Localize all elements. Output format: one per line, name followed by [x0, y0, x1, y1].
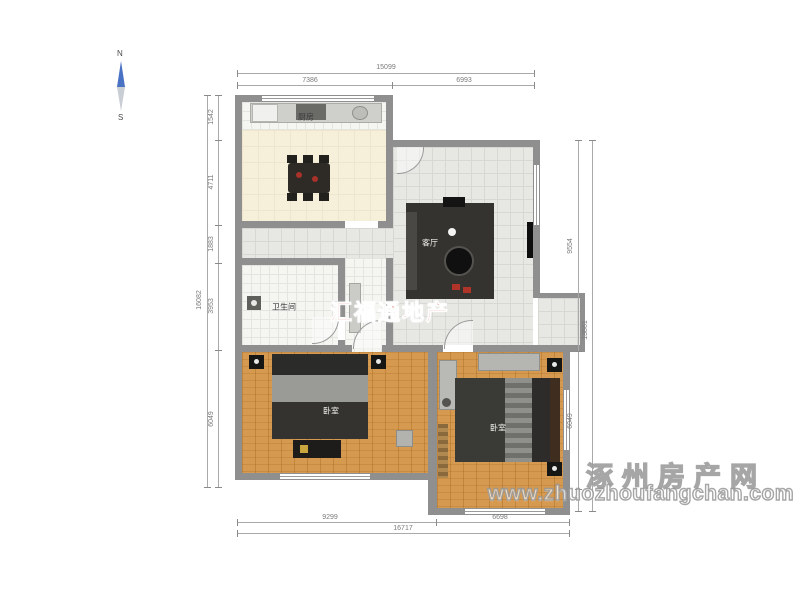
bathroom-label: 卫生间	[272, 303, 296, 312]
bay-floor	[538, 298, 580, 345]
living-window	[534, 165, 539, 225]
dim-line-left-inner	[218, 95, 219, 488]
kitchen-sink	[352, 106, 368, 120]
dim-line-right-inner	[578, 140, 579, 512]
nightstand	[249, 355, 264, 369]
dining-table-decor	[312, 176, 318, 182]
dim-line-bottom-overall	[237, 533, 570, 534]
wall-bedroom-divider	[428, 352, 437, 508]
living-round-table	[444, 246, 474, 276]
living-tv-cabinet	[443, 197, 465, 207]
bed-right-pillows	[532, 378, 550, 462]
dim-left-seg-3: 1883	[208, 214, 216, 274]
living-cushion	[463, 287, 471, 293]
bench-pillow	[300, 445, 308, 453]
nightstand	[547, 358, 562, 372]
compass-north-label: N	[117, 49, 123, 58]
wall-middle-c	[473, 345, 585, 352]
dim-right-lower: 6049	[567, 391, 575, 451]
living-label: 客厅	[422, 239, 438, 248]
dim-left-seg-5: 6049	[208, 389, 216, 449]
bedroom-left-stool	[396, 430, 413, 447]
agency-watermark: 汇福通地产	[330, 295, 450, 327]
dim-bottom-left: 9299	[300, 514, 360, 522]
dim-bottom-right: 6698	[470, 514, 530, 522]
bedroom-right-runner	[438, 424, 448, 478]
wall-living-top	[386, 140, 540, 147]
dining-chair	[287, 155, 297, 163]
bed-right-blanket	[505, 378, 532, 462]
washing-machine-door	[251, 300, 257, 306]
dining-table	[288, 163, 330, 193]
desk-chair	[442, 398, 451, 407]
dim-line-bottom-inner	[237, 522, 570, 523]
living-sofa	[406, 212, 417, 290]
bed-left-foot	[272, 402, 368, 439]
dining-table-decor	[296, 172, 302, 178]
wall-middle-b	[382, 345, 443, 352]
dim-right-upper: 9554	[567, 216, 575, 276]
bedroom-right-label: 卧室	[490, 424, 506, 433]
bedroom-left-window	[280, 474, 370, 479]
dining-chair	[319, 155, 329, 163]
compass-south-label: S	[118, 113, 123, 122]
compass-needle-south-icon	[117, 87, 125, 111]
wall-left-outer	[235, 95, 242, 480]
dining-chair	[303, 193, 313, 201]
bed-left-pillows	[272, 354, 368, 375]
kitchen-label: 厨房	[298, 113, 314, 122]
dim-right-overall: 13861	[582, 300, 590, 360]
dining-chair	[287, 193, 297, 201]
dining-chair	[319, 193, 329, 201]
corridor-floor	[242, 228, 393, 258]
living-lamp	[448, 228, 456, 236]
compass-needle-north-icon	[117, 61, 125, 87]
wall-kitchen-bottom-a	[235, 221, 345, 228]
dim-top-overall: 15099	[356, 64, 416, 72]
dim-left-seg-1: 1542	[208, 87, 216, 147]
wall-middle-a	[235, 345, 352, 352]
wall-kitchen-bottom-b	[378, 221, 393, 228]
dim-left-seg-4: 3953	[208, 276, 216, 336]
kitchen-window	[262, 96, 374, 101]
kitchen-fridge	[252, 104, 278, 122]
dim-bottom-overall: 16717	[373, 525, 433, 533]
wall-bathroom-top	[242, 258, 345, 265]
living-cushion	[452, 284, 460, 290]
nightstand	[371, 355, 386, 369]
floorplan-canvas: N S	[0, 0, 800, 600]
bedroom-left-label: 卧室	[323, 407, 339, 416]
dim-left-seg-2: 4711	[208, 152, 216, 212]
wall-kitchen-right	[386, 95, 393, 221]
dim-line-top-inner	[237, 85, 535, 86]
nightstand	[547, 462, 562, 476]
dim-left-overall: 16082	[196, 270, 204, 330]
dining-chair	[303, 155, 313, 163]
bed-right-headboard	[550, 378, 560, 462]
dim-top-left: 7386	[280, 77, 340, 85]
dim-line-top-overall	[237, 73, 535, 74]
dim-top-right: 6993	[434, 77, 494, 85]
bed-left-blanket	[272, 375, 368, 402]
bedroom-right-dresser	[478, 353, 540, 371]
site-url-watermark: www.zhuozhoufangchan.com	[488, 482, 794, 506]
bed-right-foot	[455, 378, 505, 462]
